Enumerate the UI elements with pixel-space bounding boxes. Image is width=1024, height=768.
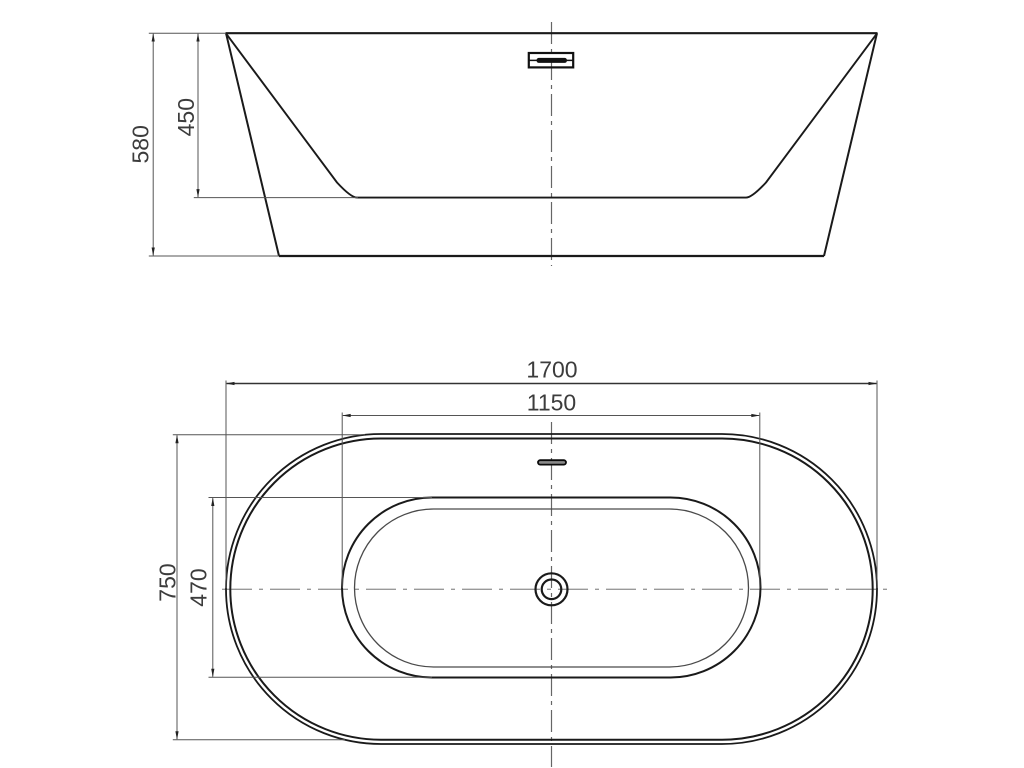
svg-text:580: 580 bbox=[128, 125, 154, 163]
svg-text:750: 750 bbox=[155, 563, 181, 601]
svg-text:1700: 1700 bbox=[526, 357, 577, 383]
svg-text:470: 470 bbox=[186, 568, 212, 606]
svg-text:1150: 1150 bbox=[527, 390, 576, 416]
svg-text:450: 450 bbox=[173, 98, 199, 136]
